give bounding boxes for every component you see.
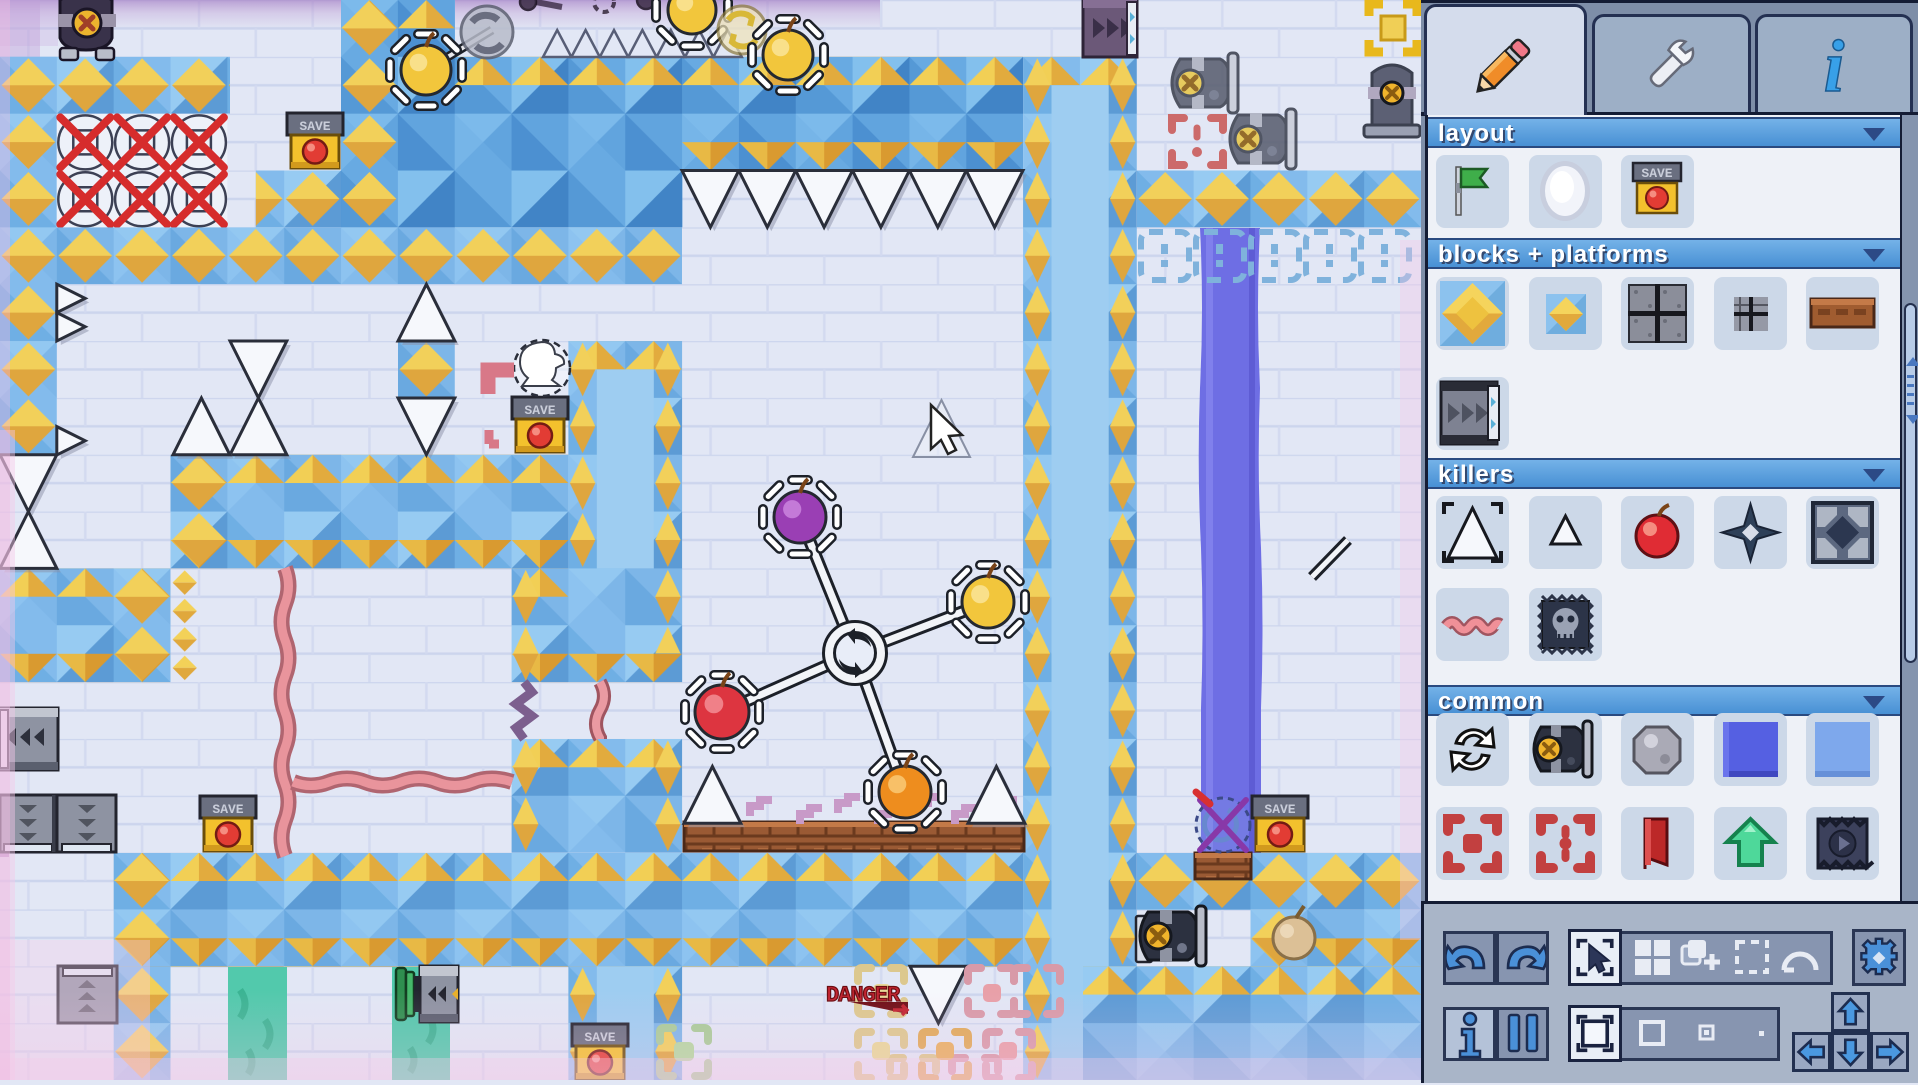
svg-text:SAVE: SAVE (212, 802, 243, 817)
svg-text:SAVE: SAVE (524, 403, 555, 418)
svg-text:SAVE: SAVE (1264, 802, 1295, 817)
svg-text:SAVE: SAVE (1641, 166, 1672, 181)
svg-text:i: i (1824, 29, 1845, 101)
svg-text:SAVE: SAVE (299, 119, 330, 134)
